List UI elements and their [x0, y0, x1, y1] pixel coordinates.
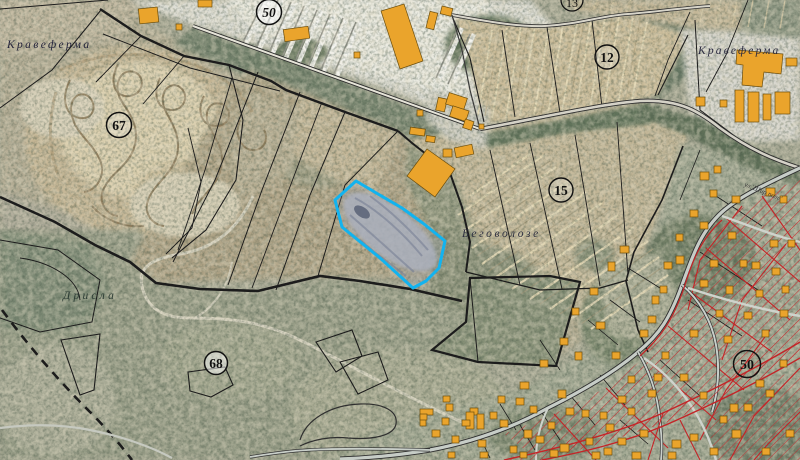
svg-text:Кравеферма: Кравеферма	[697, 45, 780, 57]
svg-text:68: 68	[209, 356, 223, 371]
svg-text:50: 50	[262, 5, 276, 20]
svg-text:12: 12	[600, 50, 614, 65]
svg-text:13: 13	[566, 0, 578, 10]
svg-text:50: 50	[740, 358, 754, 373]
svg-text:67: 67	[112, 118, 126, 133]
svg-text:Кравеферма: Кравеферма	[6, 39, 91, 51]
svg-text:Беговолозе: Беговолозе	[461, 228, 541, 240]
svg-text:Дрисла: Дрисла	[62, 290, 117, 302]
svg-text:15: 15	[554, 183, 568, 198]
